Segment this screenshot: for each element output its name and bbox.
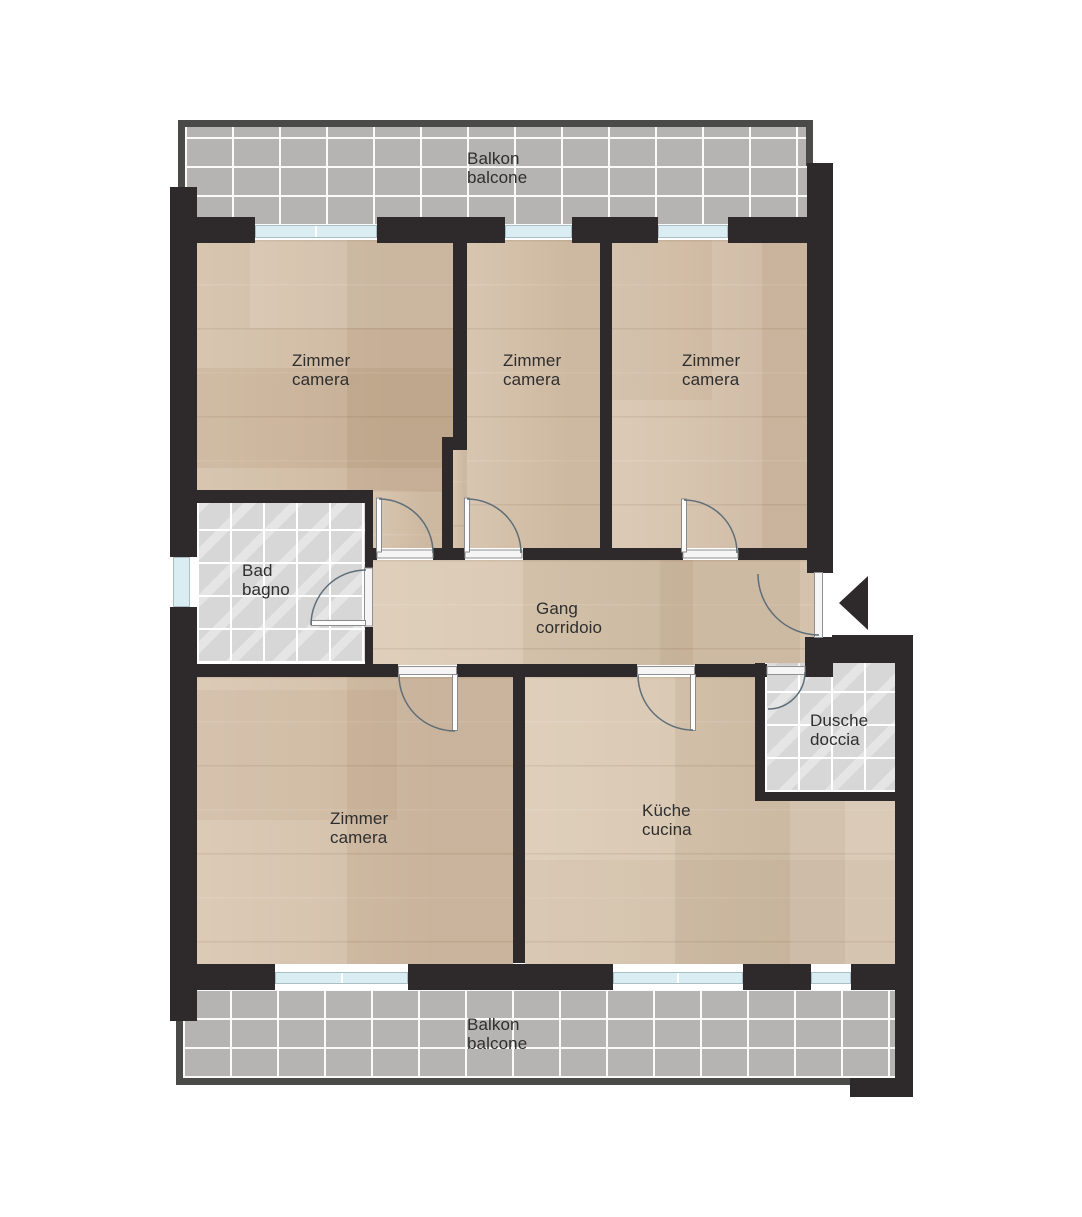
label-line-it: balcone (467, 1035, 527, 1054)
label-line-de: Dusche (810, 712, 868, 731)
entrance-arrow-icon (839, 576, 868, 630)
room-floor-zimmer-top-middle (467, 240, 600, 548)
room-label-dusche: Dusche doccia (810, 712, 868, 749)
label-line-de: Küche (642, 802, 692, 821)
wall-bottom-pier (851, 964, 895, 990)
wall-top-pier (197, 217, 255, 243)
label-line-it: camera (330, 829, 388, 848)
label-line-de: Zimmer (330, 810, 388, 829)
wall-zimmer1-zimmer2-lower (442, 450, 453, 548)
floor-plan: Balkon balcone Zimmer camera Zimmer came… (0, 0, 1082, 1217)
wall-bottom-pier (408, 964, 613, 990)
railing-bottom (176, 1078, 850, 1085)
label-line-de: Zimmer (682, 352, 740, 371)
railing-top (178, 120, 813, 127)
label-line-it: doccia (810, 731, 868, 750)
label-line-it: camera (292, 371, 350, 390)
wall-dusche-south (755, 792, 913, 801)
wall-top-pier (377, 217, 505, 243)
room-label-bad: Bad bagno (242, 562, 290, 599)
room-label-zimmer-top-left: Zimmer camera (292, 352, 350, 389)
window-zimmer-top-middle (505, 225, 572, 238)
door-threshold-zimmer-top-right (683, 550, 738, 558)
label-line-de: Balkon (467, 150, 527, 169)
wall-gang-north (523, 548, 683, 560)
door-threshold-zimmer-top-left (377, 550, 433, 558)
window-zimmer-top-left (255, 225, 377, 238)
railing-bottom-left (176, 1021, 183, 1085)
label-line-it: camera (503, 371, 561, 390)
room-floor-zimmer-top-middle-strip (453, 437, 467, 548)
wall-balcony-corner-block (850, 1078, 913, 1097)
room-label-balcony-top: Balkon balcone (467, 150, 527, 187)
wall-gang-south (170, 664, 398, 677)
door-threshold-bad (365, 568, 373, 626)
door-threshold-zimmer-top-middle (465, 550, 522, 558)
label-line-de: Zimmer (503, 352, 561, 371)
window-zimmer-bottom (275, 972, 408, 984)
room-floor-zimmer-top-right (612, 240, 807, 548)
wall-outer-right-lower (895, 640, 913, 1097)
room-label-zimmer-bottom: Zimmer camera (330, 810, 388, 847)
room-label-zimmer-top-middle: Zimmer camera (503, 352, 561, 389)
wall-outer-right-upper (807, 163, 833, 573)
room-label-kueche: Küche cucina (642, 802, 692, 839)
room-label-gang: Gang corridoio (536, 600, 602, 637)
railing-top-right (806, 120, 813, 166)
wall-gang-south (457, 664, 637, 677)
wall-bad-north (170, 490, 373, 503)
window-bad (173, 557, 190, 607)
wall-gang-north (433, 548, 465, 560)
label-line-de: Gang (536, 600, 602, 619)
wall-bottom-pier (196, 964, 275, 990)
label-line-de: Zimmer (292, 352, 350, 371)
wall-entrance-jamb (805, 637, 833, 677)
label-line-it: balcone (467, 169, 527, 188)
wall-bad-east-lower (365, 627, 373, 664)
label-line-it: camera (682, 371, 740, 390)
room-label-balcony-bottom: Balkon balcone (467, 1016, 527, 1053)
wall-bottom-pier (743, 964, 811, 990)
door-threshold-zimmer-bottom (399, 667, 457, 675)
label-line-it: bagno (242, 581, 290, 600)
wall-zimmer1-zimmer2-jog (442, 437, 467, 450)
railing-top-left (178, 120, 185, 190)
window-zimmer-top-right (658, 225, 728, 238)
label-line-it: corridoio (536, 619, 602, 638)
balcony-bottom-floor (183, 990, 895, 1078)
wall-zimmer-kueche (513, 665, 525, 963)
wall-dusche-west (755, 663, 765, 801)
room-label-zimmer-top-right: Zimmer camera (682, 352, 740, 389)
window-kueche-large (613, 972, 743, 984)
wall-gang-north (738, 548, 807, 560)
wall-zimmer2-zimmer3 (600, 240, 612, 560)
label-line-de: Balkon (467, 1016, 527, 1035)
room-floor-zimmer-top-left-alcove (373, 490, 442, 548)
label-line-it: cucina (642, 821, 692, 840)
window-kueche-small (811, 972, 851, 984)
wall-top-pier (572, 217, 658, 243)
door-threshold-kueche (638, 667, 695, 675)
label-line-de: Bad (242, 562, 290, 581)
wall-zimmer1-zimmer2-upper (453, 240, 467, 443)
wall-gang-north (365, 548, 377, 560)
